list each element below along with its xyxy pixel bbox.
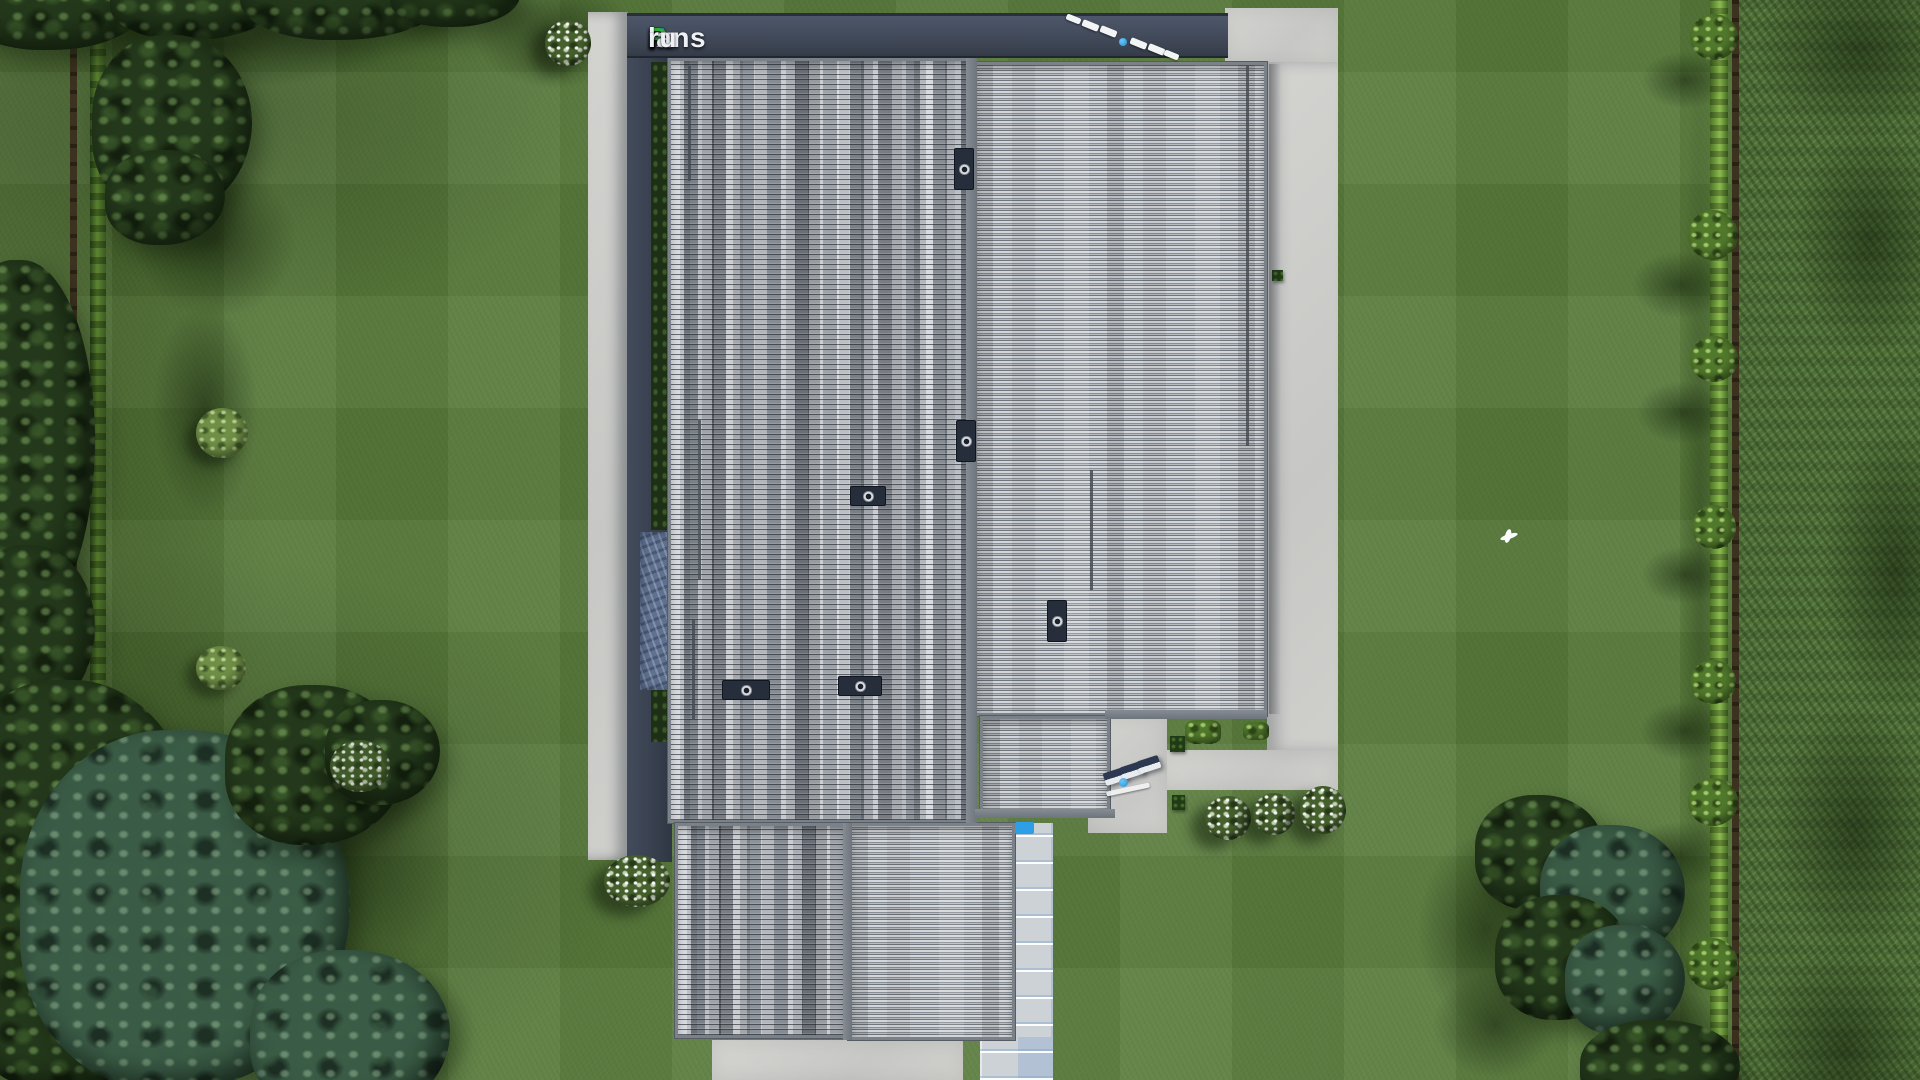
vent-pipe (863, 491, 874, 502)
tree-shadow (150, 300, 260, 520)
hedge-bush (1690, 660, 1736, 704)
hedge-bush (1185, 720, 1221, 744)
blue-ball (1119, 38, 1127, 46)
concrete-strip-left (588, 12, 628, 860)
planting-strip (651, 688, 668, 742)
roof-tiled-main (668, 58, 973, 823)
bush-shadow (1640, 545, 1730, 605)
flower-shrub (1205, 796, 1251, 840)
roof-striped-bottom (848, 823, 1015, 1040)
roof-vent (954, 148, 974, 190)
roof-gutter-line (692, 620, 695, 720)
roof-edge (1105, 710, 1267, 719)
hedge-bush (1690, 14, 1738, 60)
flower-shrub (604, 855, 670, 907)
concrete-path-arm (1160, 750, 1338, 790)
planter (1170, 736, 1185, 752)
flower-shrub (1300, 786, 1346, 834)
vent-pipe (1052, 616, 1063, 627)
roof-edge (975, 809, 1115, 818)
bush-shadow (1635, 380, 1730, 445)
flower-shrub (545, 20, 591, 66)
concrete-path-bottom (712, 1040, 963, 1080)
roof-seam-vertical (843, 823, 852, 1040)
hedge-bush (1692, 505, 1736, 549)
concrete-block-topright (1225, 8, 1338, 62)
bush-shadow (1638, 700, 1730, 762)
hedge-bush (1690, 336, 1738, 382)
vent-pipe (741, 685, 752, 696)
blue-towel (1015, 822, 1034, 834)
flower-shrub (1253, 793, 1295, 835)
planting-strip (651, 62, 668, 530)
bush (196, 646, 246, 690)
tile-walkway-extension (980, 1037, 1053, 1080)
roof-vent (956, 420, 976, 462)
bush-shadow (1630, 250, 1730, 320)
roof-tiled-lower-left (675, 823, 848, 1038)
roof-vent (838, 676, 882, 696)
bird (1496, 526, 1522, 548)
roof-gutter-line (688, 66, 691, 181)
roof-vent (722, 680, 770, 700)
house-fascia-band: FixPlans.ru (627, 13, 1228, 58)
vent-pipe (855, 681, 866, 692)
flower-shrub (330, 740, 390, 792)
roof-gutter-line (1246, 66, 1249, 446)
hedge-bush (1243, 722, 1269, 740)
roof-striped-lower (980, 716, 1110, 816)
hedge-bush (1688, 210, 1738, 260)
hedge-bush (1688, 778, 1738, 826)
bush (196, 408, 248, 458)
blue-ball (1119, 778, 1128, 787)
vent-pipe (961, 436, 972, 447)
planter (1172, 795, 1185, 810)
roof-vent (1047, 600, 1067, 642)
roof-gutter-line (698, 420, 701, 580)
roof-drop-shadow (1269, 64, 1281, 714)
right-fence (1732, 0, 1739, 1080)
hedge-bush (1686, 938, 1738, 990)
aerial-site-render: FixPlans.ru (0, 0, 1920, 1080)
logo-letter: ru (648, 22, 677, 54)
roof-striped-main (973, 62, 1267, 716)
roof-vent (850, 486, 886, 506)
vent-pipe (959, 164, 970, 175)
roof-gutter-line (1090, 470, 1093, 590)
